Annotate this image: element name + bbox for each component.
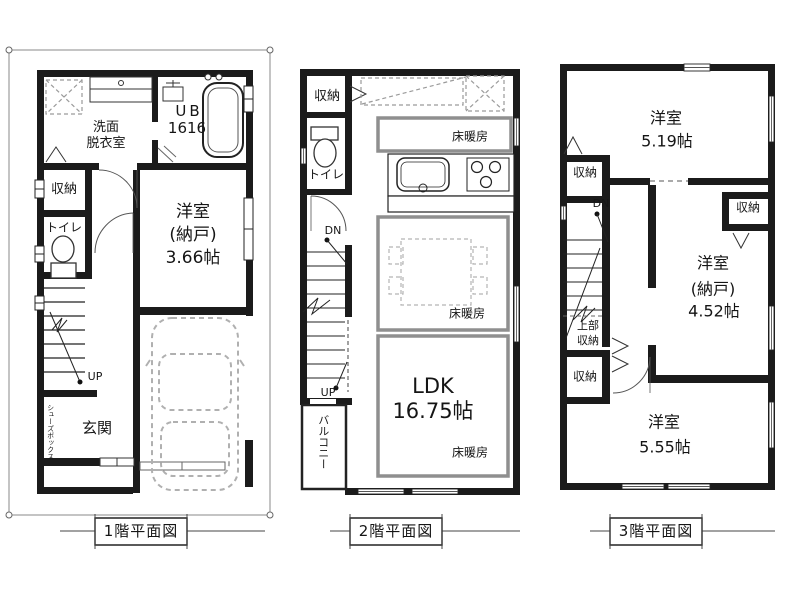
f2-kitchen-counter-dashed	[361, 76, 504, 111]
f1-entrance-label: 玄関	[82, 421, 112, 437]
f2-floor-heating-label-3: 床暖房	[452, 447, 488, 460]
f2-kitchen-icon	[388, 154, 514, 212]
f3-western-room-555-label-line2: 5.55帖	[639, 440, 691, 457]
f1-stairs	[44, 288, 85, 385]
f2-floor-heating-1	[378, 118, 511, 151]
f1-closet-door-icon	[46, 147, 66, 162]
f2-storage-label: 収納	[314, 90, 340, 104]
f1-western-room-label-line1: 洋室	[176, 204, 210, 222]
f1-vanity-icon	[90, 77, 152, 102]
f3-storage-b-label: 収納	[736, 202, 760, 215]
f3-western-room-519-label-line2: 5.19帖	[641, 134, 693, 151]
f2-ldk-label-line2: 16.75帖	[392, 400, 473, 422]
f1-up-label: UP	[88, 371, 103, 383]
f3-nando-label-line2: (納戸)	[691, 282, 736, 299]
f1-toilet-icon	[51, 236, 76, 278]
f3-title: 3階平面図	[619, 524, 694, 540]
f2-stairs	[303, 238, 348, 393]
f2-floor-heating-label-1: 床暖房	[452, 131, 488, 144]
f1-western-room-label-line3: 3.66帖	[166, 250, 221, 268]
f1-door-arcs	[95, 170, 137, 253]
f2-floor-heating-label-2: 床暖房	[449, 308, 485, 321]
f2-ldk-label-line1: LDK	[412, 375, 454, 397]
f3-nando-label-line3: 4.52帖	[688, 304, 740, 321]
f2-toilet-icon	[311, 127, 338, 167]
f2-up-label: UP	[321, 387, 336, 399]
f1-storage-label: 収納	[51, 183, 77, 197]
f2-floor-heating-2	[378, 217, 508, 330]
f3-upper-storage-label-line1: 上部	[577, 320, 599, 332]
f1-bathtub-icon	[203, 74, 243, 157]
f3-storage-c-label: 収納	[573, 371, 597, 384]
f1-washing-machine-icon	[46, 80, 82, 114]
f2-closet-door-icon	[350, 86, 366, 102]
f1-toilet-label: トイレ	[46, 222, 82, 235]
f2-title: 2階平面図	[359, 524, 434, 540]
f2-balcony-label: バルコニー	[317, 415, 329, 470]
f3-nando-label-line1: 洋室	[697, 256, 729, 273]
f1-unit-bath-label-line2: 1616	[168, 121, 206, 137]
f3-dn-label: DN	[593, 198, 610, 210]
f2-dn-label: DN	[325, 225, 342, 237]
f1-shoe-box-label: シューズボックス	[46, 404, 53, 460]
floorplan-canvas	[0, 0, 800, 600]
f2-toilet-label: トイレ	[308, 169, 344, 182]
f1-entrance-door	[100, 458, 225, 470]
f1-title: 1階平面図	[104, 524, 179, 540]
f1-western-room-label-line2: (納戸)	[169, 227, 216, 245]
f3-western-room-519-label-line1: 洋室	[650, 111, 682, 128]
f3-western-room-555-label-line1: 洋室	[648, 415, 680, 432]
f1-unit-bath-label-line1: UB	[175, 104, 202, 120]
f3-storage-a-label: 収納	[573, 167, 597, 180]
f1-washroom-label-line2: 脱衣室	[86, 137, 125, 151]
f3-door-arc	[613, 357, 650, 393]
f1-washroom-label-line1: 洗面	[93, 121, 119, 135]
f3-upper-storage-label-line2: 収納	[577, 335, 599, 347]
floor-plan-image: 洗面 脱衣室 UB 1616 収納 トイレ 洋室 (納戸) 3.66帖 UP 玄…	[0, 0, 800, 600]
